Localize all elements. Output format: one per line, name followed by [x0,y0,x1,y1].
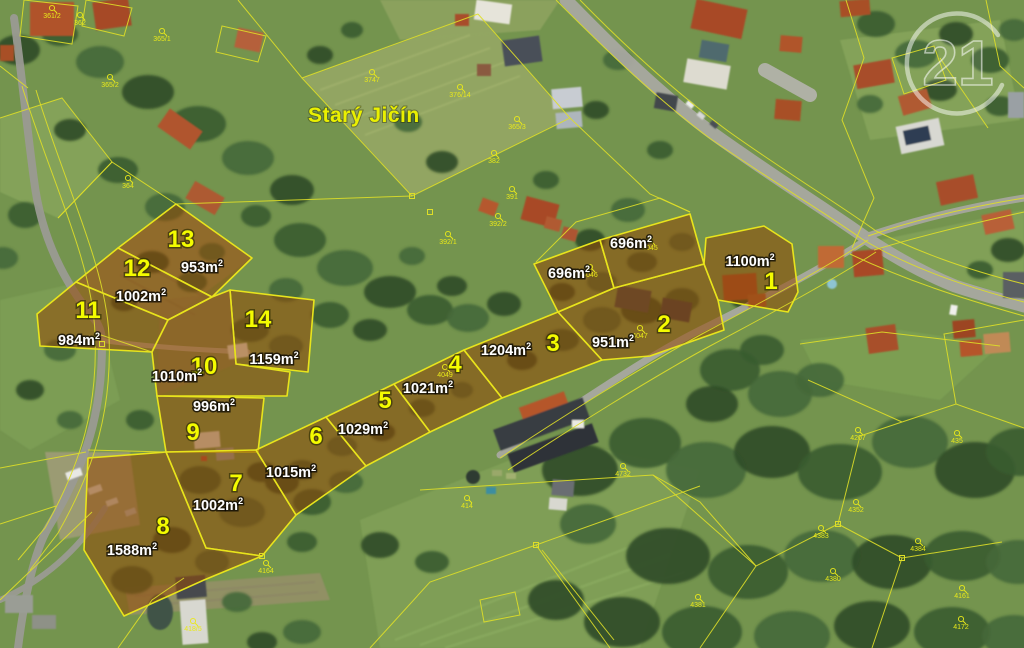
cadastral-ref: 382 [488,158,500,165]
tree-cluster [307,46,333,64]
cadastral-ref: 3747 [364,77,380,84]
tree-cluster [222,141,274,175]
parcel-extra-area: 696m2 [548,264,590,282]
building [32,615,56,629]
cadastral-ref: 4161 [954,593,970,600]
tree-cluster [407,295,453,325]
parcel-6-area: 1015m2 [266,463,316,481]
cadastral-ref: 365/1 [153,36,171,43]
cadastral-ref: 364 [122,183,134,190]
tree-cluster [16,380,44,400]
building [983,332,1011,354]
tree-cluster [399,247,425,265]
building [839,0,870,17]
parcel-7-number: 7 [229,470,242,497]
parcel-11-area: 984m2 [58,331,100,349]
tree-cluster [560,504,616,544]
tree-cluster [361,532,399,558]
parcel-6-number: 6 [309,423,322,450]
cadastral-ref: 414 [461,503,473,510]
parcel-10-area: 1010m2 [152,367,202,385]
building [1003,272,1024,298]
pond [466,470,480,484]
tree-cluster [533,171,559,189]
tree-cluster [241,205,271,227]
tree-cluster [647,141,673,159]
building [549,497,568,511]
cadastral-ref: 418/5 [184,626,202,633]
building [501,35,542,66]
building [477,64,491,76]
tree-cluster [274,223,326,257]
place-name-label: Starý Jičín [308,104,420,127]
cadastral-ref: 4732 [615,471,631,478]
building [486,487,496,494]
tree-cluster [626,528,710,584]
tree-cluster [611,198,645,222]
cadastral-ref: 392/2 [489,221,507,228]
tree-cluster [57,411,83,429]
cadastral-ref: 4381 [690,602,706,609]
building [492,470,502,476]
tree-cluster [584,597,660,647]
parcel-11-number: 11 [75,297,100,324]
tree-cluster [76,46,124,78]
tree-cluster [426,151,458,173]
parcel-extra-area: 696m2 [610,234,652,252]
building [1008,92,1024,118]
tree-cluster [487,292,521,316]
cadastral-ref: 361/2 [43,13,61,20]
parcel-7-area: 1002m2 [193,496,243,514]
parcel-8-area: 1588m2 [107,541,157,559]
tree-cluster [317,250,373,286]
tree-cluster [311,302,349,328]
cadastral-ref: 4207 [850,435,866,442]
building [5,595,33,613]
tree-cluster [222,592,252,612]
tree-cluster [798,444,882,500]
tree-cluster [708,545,788,599]
tree-cluster [283,620,321,644]
tree-cluster [415,551,449,573]
parcel-4-area: 1021m2 [403,379,453,397]
cadastral-ref: 376/14 [449,92,471,99]
parcel-14-area: 1159m2 [249,350,298,368]
parcel-13-number: 13 [168,226,195,253]
cadastral-ref: 4383 [813,533,829,540]
tree-cluster [353,319,387,341]
cadastral-ref: 4384 [910,546,926,553]
parcel-2-area: 951m2 [592,333,634,351]
building [852,249,884,278]
tree-cluster [126,410,154,430]
tree-cluster [857,95,883,113]
parcel-1-number: 1 [764,268,777,295]
parcel-5-number: 5 [378,387,391,414]
tree-cluster [967,261,993,279]
cadastral-ref: 435 [951,438,963,445]
tree-cluster [796,363,844,397]
parcel-3-number: 3 [546,330,559,357]
building [774,99,802,121]
cadastral-ref: 365/3 [508,124,526,131]
parcel-14-number: 14 [245,306,272,333]
parcel-1-area: 1100m2 [725,252,774,270]
building [865,324,898,354]
watermark-21-text: 21 [922,27,993,99]
tree-cluster [122,75,174,109]
building [179,599,208,645]
parcel-12-area: 1002m2 [116,287,166,305]
tree-cluster [583,101,609,119]
cadastral-ref: 362 [74,20,86,27]
tree-cluster [740,335,784,365]
cadastral-ref: 4164 [258,568,274,575]
parcel-8-number: 8 [156,513,169,540]
cadastral-ref: 4172 [953,624,969,631]
tree-cluster [364,276,416,308]
cadastral-ref: 392/1 [439,239,457,246]
parcel-13-area: 953m2 [181,258,223,276]
parcel-3-area: 1204m2 [481,341,531,359]
tree-cluster [287,532,317,552]
aerial-map-canvas: 361/2362365/1365/23643747376/14365/33823… [0,0,1024,648]
parcel-4-number: 4 [448,351,462,378]
cadastral-ref: 391 [506,194,518,201]
parcel-2-number: 2 [657,311,670,338]
tree-cluster [686,386,738,422]
cadastral-ref: 4352 [848,507,864,514]
parcel-9-area: 996m2 [193,397,235,415]
building [551,87,583,110]
building [779,35,802,53]
parcel-12-number: 12 [124,255,151,282]
tree-cluster [991,238,1024,262]
tree-cluster [447,304,489,332]
aerial-map: 361/2362365/1365/23643747376/14365/33823… [0,0,1024,648]
cadastral-ref: 365/2 [101,82,119,89]
building [506,473,516,479]
building [0,45,14,61]
tree-cluster [437,276,467,296]
cadastral-ref: 4047 [632,333,648,340]
cadastral-ref: 4380 [825,576,841,583]
parcel-5-area: 1029m2 [338,420,388,438]
tree-cluster [872,416,948,468]
tree-cluster [341,22,363,38]
parcel-9-number: 9 [186,419,199,446]
